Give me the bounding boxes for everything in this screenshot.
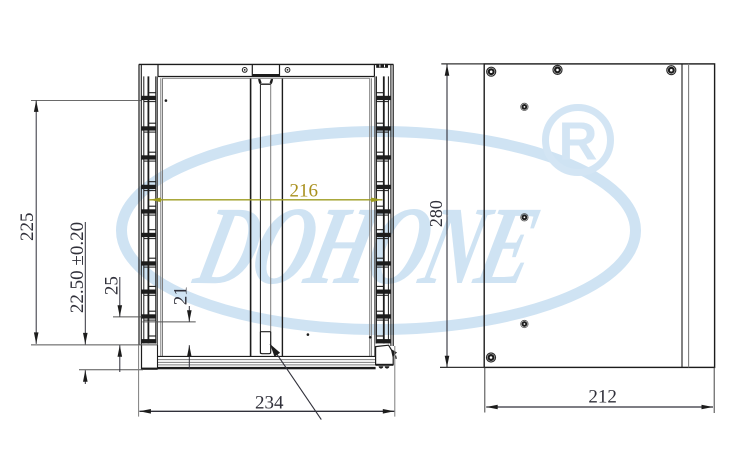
svg-text:R: R [559,112,598,172]
svg-text:234: 234 [255,393,284,414]
svg-text:DOHONE: DOHONE [184,183,548,307]
svg-text:225: 225 [17,212,38,241]
svg-text:212: 212 [588,386,617,407]
svg-text:216: 216 [290,180,319,201]
svg-text:25: 25 [101,276,122,295]
svg-text:280: 280 [426,200,446,227]
svg-text:22.50 ±0.20: 22.50 ±0.20 [67,222,88,313]
svg-text:21: 21 [171,286,192,305]
